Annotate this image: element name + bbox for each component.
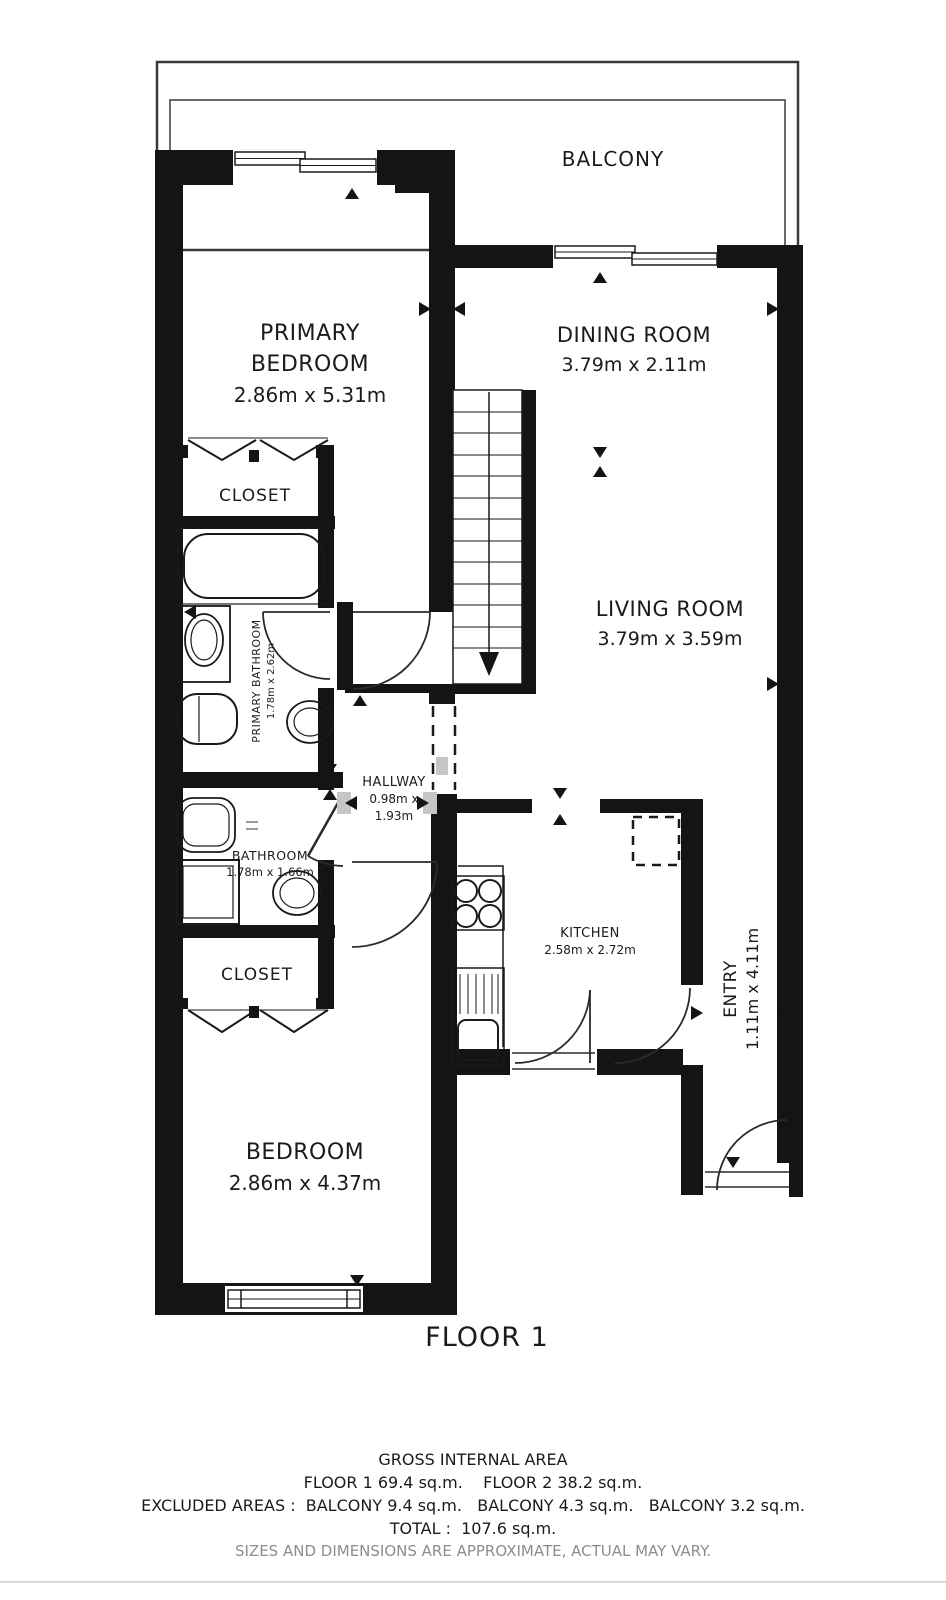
up-marker-icon xyxy=(353,695,367,706)
bedroom-corridor-door xyxy=(352,862,437,947)
up-marker-icon xyxy=(345,188,359,199)
up-marker-icon xyxy=(553,814,567,825)
kitchen-name: KITCHEN xyxy=(515,925,665,942)
primary-bedroom-dims: 2.86m x 5.31m xyxy=(200,380,420,411)
primary-bathroom-name: PRIMARY BATHROOM xyxy=(249,576,264,786)
bathroom-dims: 1.78m x 1.66m xyxy=(195,864,345,880)
up-marker-icon xyxy=(593,466,607,477)
hallway-name: HALLWAY xyxy=(334,774,454,791)
bedroom-top-window xyxy=(233,149,377,186)
kitchen-label: KITCHEN 2.58m x 2.72m xyxy=(515,925,665,959)
hallway-gray-tick xyxy=(436,757,448,775)
primary-bathroom-dims: 1.78m x 2.62m xyxy=(264,576,279,786)
living-room-name: LIVING ROOM xyxy=(555,594,785,624)
primary-bedroom-name: PRIMARY BEDROOM xyxy=(200,318,420,380)
bathroom-name: BATHROOM xyxy=(195,848,345,864)
entry-label: ENTRY 1.11m x 4.11m xyxy=(721,874,763,1104)
kitchen-door xyxy=(515,990,590,1063)
floor-plan-page: BALCONY PRIMARY BEDROOM 2.86m x 5.31m DI… xyxy=(0,0,946,1600)
entry-dims: 1.11m x 4.11m xyxy=(742,874,763,1104)
closet2-bifold-doors xyxy=(188,1006,328,1032)
bedroom-dims: 2.86m x 4.37m xyxy=(195,1168,415,1198)
living-room-dims: 3.79m x 3.59m xyxy=(555,624,785,654)
door-arcs xyxy=(263,612,787,1190)
hallway-label: HALLWAY 0.98m x 1.93m xyxy=(334,774,454,825)
dining-window xyxy=(553,243,717,270)
primary-bedroom-door xyxy=(353,612,430,689)
entry-name: ENTRY xyxy=(721,874,742,1104)
area-summary: GROSS INTERNAL AREA FLOOR 1 69.4 sq.m. F… xyxy=(0,1448,946,1563)
floor-areas: FLOOR 1 69.4 sq.m. FLOOR 2 38.2 sq.m. xyxy=(0,1471,946,1494)
dining-room-name: DINING ROOM xyxy=(520,320,748,350)
stove-icon xyxy=(452,876,504,930)
excluded-areas: EXCLUDED AREAS : BALCONY 9.4 sq.m. BALCO… xyxy=(0,1494,946,1517)
fridge-space-icon xyxy=(633,817,679,865)
bathroom-label: BATHROOM 1.78m x 1.66m xyxy=(195,848,345,880)
left-marker-icon xyxy=(184,605,196,619)
primary-bathroom-label: PRIMARY BATHROOM 1.78m x 2.62m xyxy=(249,576,279,786)
kitchen-dims: 2.58m x 2.72m xyxy=(515,942,665,959)
closet-lower-label: CLOSET xyxy=(187,965,327,985)
down-marker-icon xyxy=(593,447,607,458)
right-marker-icon xyxy=(691,1006,703,1020)
hallway-dims-line2: 1.93m xyxy=(334,808,454,825)
closet-upper-label: CLOSET xyxy=(185,486,325,506)
total-area: TOTAL : 107.6 sq.m. xyxy=(0,1517,946,1540)
floor-title: FLOOR 1 xyxy=(357,1322,617,1353)
living-room-label: LIVING ROOM 3.79m x 3.59m xyxy=(555,594,785,654)
dashed-openings xyxy=(433,706,679,865)
toilet-icon xyxy=(287,701,333,743)
disclaimer: SIZES AND DIMENSIONS ARE APPROXIMATE, AC… xyxy=(0,1540,946,1563)
up-marker-icon xyxy=(593,272,607,283)
balcony-label: BALCONY xyxy=(523,147,703,171)
primary-bedroom-label: PRIMARY BEDROOM 2.86m x 5.31m xyxy=(200,318,420,411)
hallway-dims-line1: 0.98m x xyxy=(334,791,454,808)
gross-internal-area-title: GROSS INTERNAL AREA xyxy=(0,1448,946,1471)
closet1-bifold-doors xyxy=(188,438,328,462)
dining-room-dims: 3.79m x 2.11m xyxy=(520,350,748,380)
bottom-divider xyxy=(0,1581,946,1583)
stairs-icon xyxy=(453,390,522,684)
bedroom-label: BEDROOM 2.86m x 4.37m xyxy=(195,1138,415,1198)
bedroom-name: BEDROOM xyxy=(195,1138,415,1168)
down-marker-icon xyxy=(553,788,567,799)
bathroom-sink-icon xyxy=(178,606,230,682)
floor-plan-canvas xyxy=(0,0,946,1600)
sink-icon xyxy=(177,798,258,852)
bedroom-bottom-window xyxy=(225,1286,363,1312)
dining-room-label: DINING ROOM 3.79m x 2.11m xyxy=(520,320,748,380)
bidet-icon xyxy=(177,694,237,744)
